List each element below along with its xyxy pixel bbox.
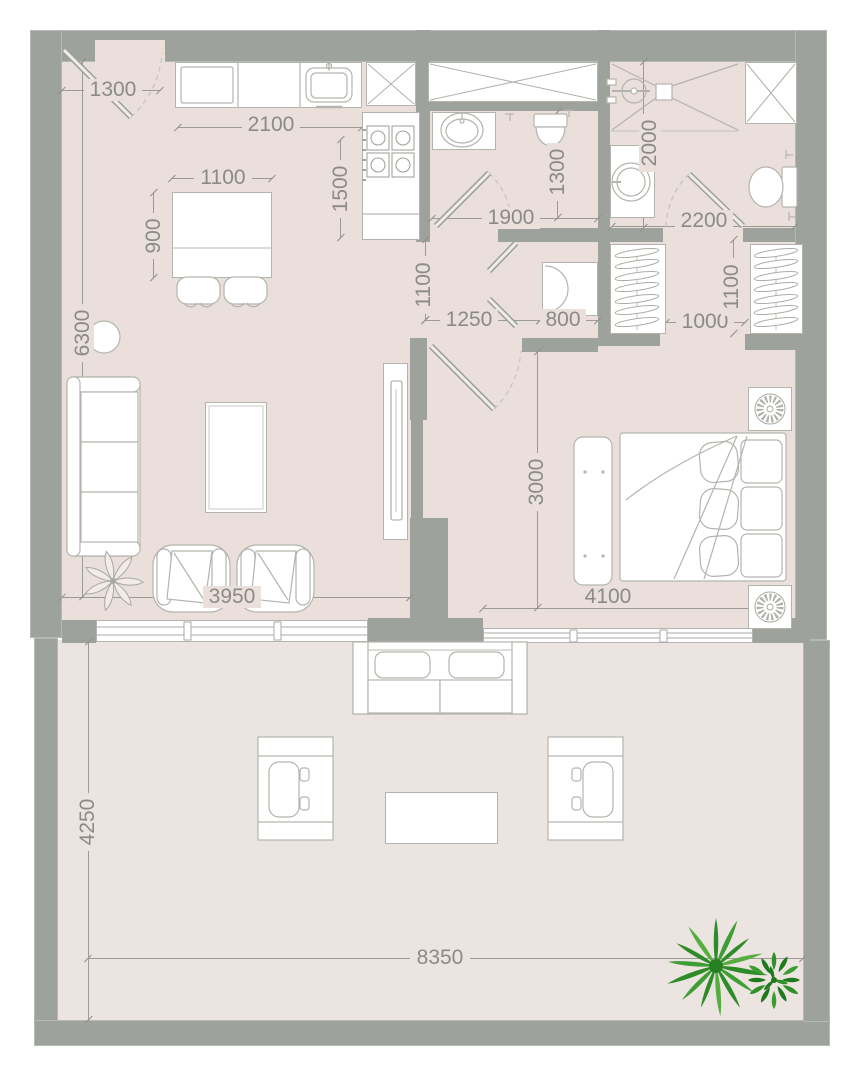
stove-counter <box>362 112 420 240</box>
partition-pillar <box>410 518 448 622</box>
wardrobe-right <box>750 244 803 334</box>
linen-closet <box>428 62 598 102</box>
dim-bathroom-depth: 1300 <box>547 143 569 201</box>
dim-living-room-width: 3950 <box>203 586 261 608</box>
dim-bedroom-depth: 3000 <box>526 453 548 511</box>
vent-shaft-master-bath <box>745 62 797 124</box>
exterior-wall-bottom <box>34 1020 830 1046</box>
dim-kitchen-counter-depth: 1500 <box>330 160 352 218</box>
partition-thin <box>411 420 423 518</box>
dim-entry-width: 1300 <box>84 79 142 101</box>
partition-stub <box>410 338 427 420</box>
dim-hall-length: 1250 <box>440 309 498 331</box>
exterior-wall-left-upper <box>30 30 62 638</box>
dim-terrace-depth: 4250 <box>77 793 99 851</box>
interior-wall-bath1-top <box>428 102 598 111</box>
dim-hall-opening-width: 1100 <box>413 256 435 314</box>
dim-dining-table-depth: 900 <box>143 213 165 259</box>
wardrobe-left <box>610 244 666 334</box>
terrace-table <box>385 792 498 844</box>
dim-kitchen-counter-width: 2100 <box>242 114 300 136</box>
dining-table <box>172 192 272 278</box>
floor-plan: 1300 2100 1500 1100 900 6300 1100 1900 1… <box>0 0 857 1080</box>
dim-bathroom-width: 1900 <box>482 207 540 229</box>
nightstand-top <box>748 387 792 431</box>
window-living <box>96 620 368 642</box>
bathroom-sink-counter <box>432 112 496 150</box>
dim-wardrobe-depth: 1100 <box>721 258 743 316</box>
interior-wall-mbath-bottom-right <box>743 228 795 242</box>
dim-dining-table-width: 1100 <box>194 167 252 189</box>
coffee-table <box>205 402 267 513</box>
tv-console <box>383 363 408 540</box>
window-bedroom <box>483 628 753 643</box>
interior-wall-mbath-bottom-left <box>610 228 663 242</box>
window-wall-mid <box>368 618 483 643</box>
exterior-wall-left-lower <box>34 638 58 1024</box>
dim-shower-room-depth: 2000 <box>639 114 661 172</box>
exterior-wall-right-lower <box>803 640 830 1022</box>
vent-shaft-kitchen <box>366 62 416 106</box>
dim-utility-closet-width: 800 <box>540 309 586 331</box>
dim-line-bedroom-width <box>483 608 753 609</box>
entrance-opening <box>95 40 165 62</box>
dim-master-bathroom-width: 2200 <box>675 210 733 232</box>
interior-wall-under-wardrobe-right <box>745 334 803 350</box>
interior-wall-bath-divider <box>598 30 610 345</box>
nightstand-bottom <box>748 585 792 629</box>
dim-bedroom-width: 4100 <box>579 586 637 608</box>
interior-wall-bedroom-top <box>522 338 598 352</box>
kitchen-counter <box>175 62 362 108</box>
dim-terrace-width: 8350 <box>410 947 470 969</box>
interior-wall-bath1-bottom <box>498 228 598 242</box>
dim-living-room-length: 6300 <box>72 304 94 362</box>
